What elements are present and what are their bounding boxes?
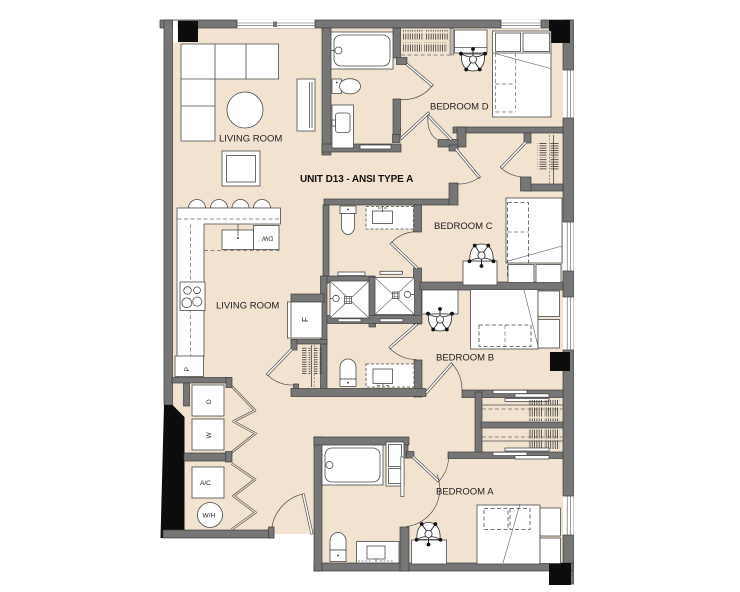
svg-text:BEDROOM D: BEDROOM D xyxy=(430,102,489,113)
svg-text:P: P xyxy=(184,367,191,371)
svg-text:BEDROOM B: BEDROOM B xyxy=(436,353,494,364)
svg-text:W: W xyxy=(206,432,213,439)
svg-text:A/C: A/C xyxy=(200,480,211,487)
svg-text:F: F xyxy=(301,317,310,322)
svg-text:LIVING ROOM: LIVING ROOM xyxy=(216,301,279,312)
svg-text:BEDROOM C: BEDROOM C xyxy=(434,221,493,232)
svg-text:D: D xyxy=(206,399,213,404)
svg-text:LIVING ROOM: LIVING ROOM xyxy=(219,134,282,145)
svg-text:W/H: W/H xyxy=(203,513,216,520)
svg-text:BEDROOM A: BEDROOM A xyxy=(436,487,494,498)
svg-text:UNIT D13 - ANSI TYPE A: UNIT D13 - ANSI TYPE A xyxy=(300,174,413,185)
svg-text:DW: DW xyxy=(261,235,273,242)
